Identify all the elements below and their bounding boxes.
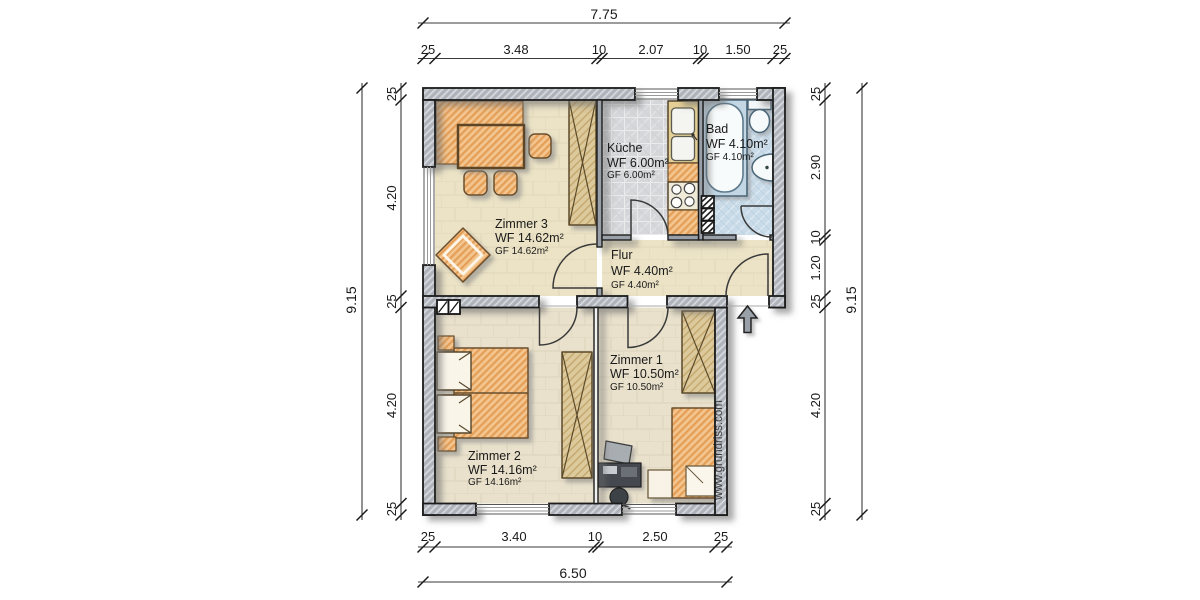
- svg-text:WF 14.16m²: WF 14.16m²: [468, 463, 537, 477]
- svg-text:4.20: 4.20: [384, 393, 399, 418]
- svg-text:Zimmer 2: Zimmer 2: [468, 449, 521, 463]
- svg-text:WF 14.62m²: WF 14.62m²: [495, 231, 564, 245]
- svg-text:GF 6.00m²: GF 6.00m²: [607, 170, 655, 181]
- svg-text:Küche: Küche: [607, 141, 642, 155]
- svg-text:3.40: 3.40: [501, 529, 526, 544]
- svg-text:9.15: 9.15: [843, 286, 859, 313]
- svg-text:1.20: 1.20: [808, 255, 823, 280]
- svg-text:GF 10.50m²: GF 10.50m²: [610, 382, 664, 393]
- svg-text:10: 10: [588, 529, 602, 544]
- svg-text:2.50: 2.50: [642, 529, 667, 544]
- svg-text:WF 4.40m²: WF 4.40m²: [611, 264, 673, 278]
- svg-text:10: 10: [693, 42, 707, 57]
- svg-text:7.75: 7.75: [590, 6, 617, 22]
- svg-text:2.90: 2.90: [808, 155, 823, 180]
- svg-text:WF 6.00m²: WF 6.00m²: [607, 156, 669, 170]
- svg-text:Flur: Flur: [611, 248, 633, 262]
- svg-text:25: 25: [808, 87, 823, 101]
- svg-text:Zimmer 3: Zimmer 3: [495, 217, 548, 231]
- svg-text:GF 14.16m²: GF 14.16m²: [468, 477, 522, 488]
- svg-text:25: 25: [384, 502, 399, 516]
- svg-text:1.50: 1.50: [725, 42, 750, 57]
- svg-text:GF 4.10m²: GF 4.10m²: [706, 152, 754, 163]
- svg-text:Bad: Bad: [706, 122, 728, 136]
- svg-text:25: 25: [714, 529, 728, 544]
- svg-text:www.grundriss.com: www.grundriss.com: [713, 400, 725, 501]
- svg-text:2.07: 2.07: [638, 42, 663, 57]
- svg-text:WF 4.10m²: WF 4.10m²: [706, 137, 768, 151]
- svg-text:25: 25: [384, 294, 399, 308]
- svg-text:Zimmer 1: Zimmer 1: [610, 353, 663, 367]
- svg-text:3.48: 3.48: [503, 42, 528, 57]
- svg-text:6.50: 6.50: [559, 565, 586, 581]
- svg-text:9.15: 9.15: [343, 286, 359, 313]
- svg-text:4.20: 4.20: [808, 393, 823, 418]
- svg-text:25: 25: [773, 42, 787, 57]
- svg-text:25: 25: [421, 529, 435, 544]
- svg-text:25: 25: [808, 502, 823, 516]
- svg-text:WF 10.50m²: WF 10.50m²: [610, 367, 679, 381]
- svg-text:25: 25: [421, 42, 435, 57]
- svg-text:10: 10: [592, 42, 606, 57]
- svg-text:25: 25: [808, 294, 823, 308]
- svg-text:10: 10: [808, 230, 823, 244]
- svg-text:25: 25: [384, 87, 399, 101]
- svg-text:4.20: 4.20: [384, 185, 399, 210]
- svg-text:GF 4.40m²: GF 4.40m²: [611, 280, 659, 291]
- svg-text:GF 14.62m²: GF 14.62m²: [495, 246, 549, 257]
